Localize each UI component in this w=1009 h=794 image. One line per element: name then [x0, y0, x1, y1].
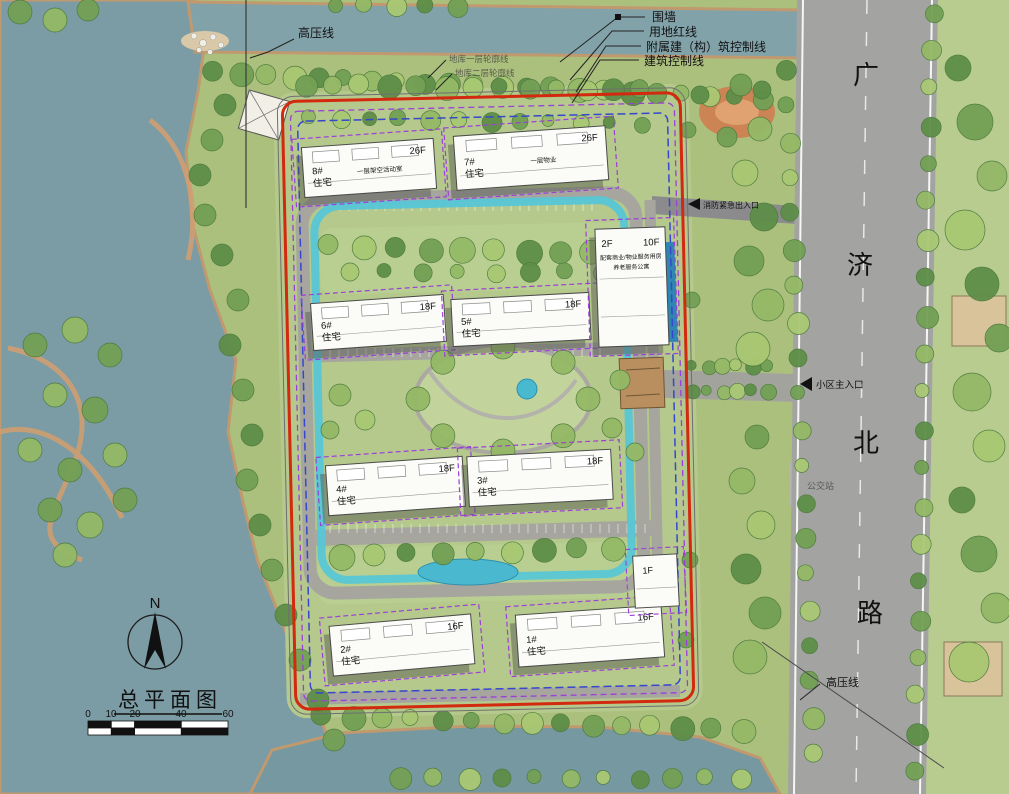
site-plan-canvas: 8#住宅26F一层架空活动室7#住宅26F一层物业6#住宅18F5#住宅18F4… — [0, 0, 1009, 794]
scale-60: 60 — [222, 709, 234, 720]
wall-dot — [615, 14, 621, 20]
building-id-label: 4# — [336, 484, 348, 496]
basement-l2-label: 地库二层轮廓线 — [455, 68, 515, 78]
wall-label: 围墙 — [652, 10, 676, 24]
red-line-label: 用地红线 — [649, 24, 697, 39]
building-id-label: 7# — [464, 157, 476, 169]
building-use-label: 住宅 — [527, 645, 547, 658]
site-plan: 8#住宅26F一层架空活动室7#住宅26F一层物业6#住宅18F5#住宅18F4… — [0, 0, 1009, 794]
gatehouse-label: 1F — [642, 565, 654, 576]
building-use-label: 住宅 — [337, 494, 357, 507]
building-floors-label: 18F — [438, 463, 455, 475]
building-10f: 2F 10F 配套商业/物业服务用房 养老服务公寓 — [586, 218, 679, 357]
building-control-label: 建筑控制线 — [644, 53, 704, 68]
building-use-label: 住宅 — [461, 327, 481, 340]
bus-stop-label: 公交站 — [807, 480, 834, 491]
hv-top-label: 高压线 — [298, 25, 334, 40]
pond-central — [517, 379, 537, 399]
road-char-3: 北 — [853, 428, 879, 458]
road-char-4: 路 — [857, 598, 883, 628]
scale-40: 40 — [175, 709, 187, 720]
building-id-label: 3# — [477, 475, 489, 487]
scale-20: 20 — [129, 709, 141, 720]
building-floors-label: 16F — [447, 621, 464, 633]
hv-bottom-label: 高压线 — [826, 675, 859, 689]
building-id-label: 6# — [321, 320, 333, 332]
basement-l1-label: 地库一层轮廓线 — [449, 54, 509, 64]
tower-left-floors: 2F — [601, 239, 613, 250]
building-use-label: 住宅 — [341, 654, 361, 668]
building-id-label: 2# — [340, 644, 352, 656]
building-use-label: 住宅 — [465, 167, 485, 180]
aux-control-label: 附属建（构）筑控制线 — [646, 39, 766, 54]
building-floors-label: 26F — [581, 132, 598, 144]
main-entrance-label: 小区主入口 — [816, 379, 864, 391]
scale-10: 10 — [105, 709, 117, 720]
building-id-label: 5# — [461, 316, 473, 328]
building-floors-label: 16F — [637, 612, 654, 624]
scale-segments — [88, 721, 228, 735]
fire-entrance-label: 消防紧急出入口 — [703, 200, 759, 210]
building-id-label: 1# — [526, 634, 538, 646]
building-id-label: 8# — [312, 166, 324, 178]
north-label: N — [150, 595, 161, 612]
road-char-1: 广 — [853, 60, 879, 90]
scale-0: 0 — [85, 709, 91, 720]
building-use-label: 住宅 — [313, 176, 333, 189]
building-floors-label: 26F — [409, 145, 426, 157]
tower-right-floors: 10F — [643, 237, 660, 249]
building-floors-label: 18F — [587, 456, 604, 468]
road-char-2: 济 — [847, 250, 873, 280]
building-use-label: 住宅 — [322, 331, 342, 344]
building-floors-label: 18F — [419, 301, 436, 313]
pond-south — [418, 559, 518, 585]
main-entrance-marker: 小区主入口 — [800, 377, 864, 391]
building-floors-label: 18F — [565, 299, 582, 311]
building-use-label: 住宅 — [477, 486, 497, 499]
